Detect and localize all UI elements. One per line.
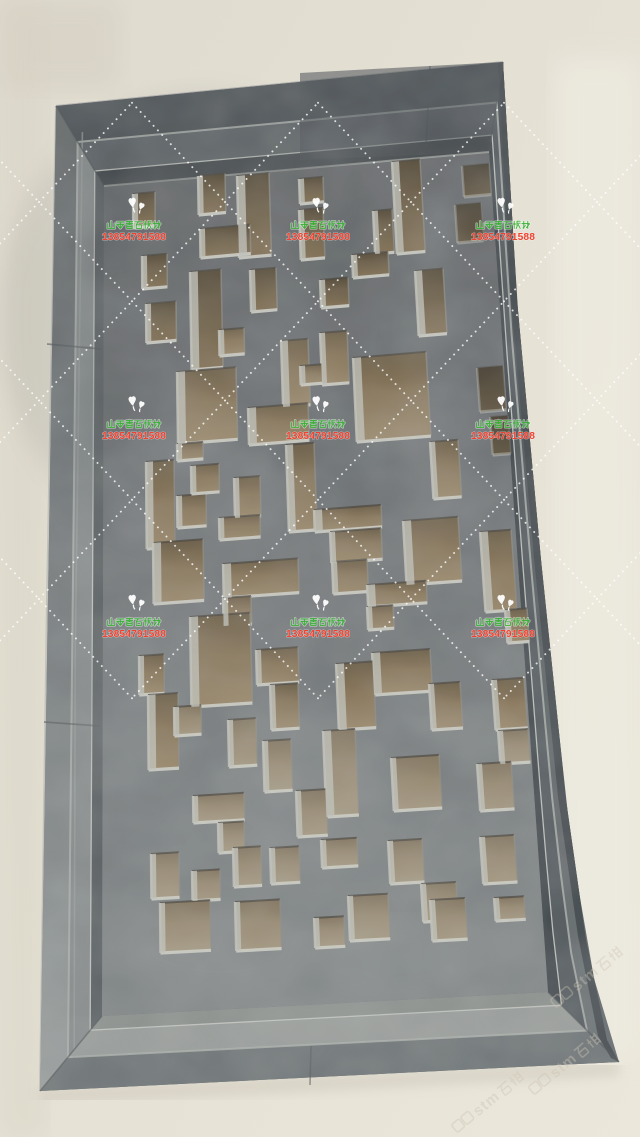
svg-text:13854791588: 13854791588	[471, 431, 535, 442]
svg-text:13854791588: 13854791588	[102, 629, 166, 640]
svg-text:13854791588: 13854791588	[286, 232, 350, 243]
svg-text:13854791588: 13854791588	[102, 431, 166, 442]
svg-text:13854791588: 13854791588	[471, 629, 535, 640]
svg-text:13854791588: 13854791588	[102, 232, 166, 243]
svg-text:13854791588: 13854791588	[286, 431, 350, 442]
svg-text:13854791588: 13854791588	[471, 232, 535, 243]
svg-text:13854791588: 13854791588	[286, 629, 350, 640]
